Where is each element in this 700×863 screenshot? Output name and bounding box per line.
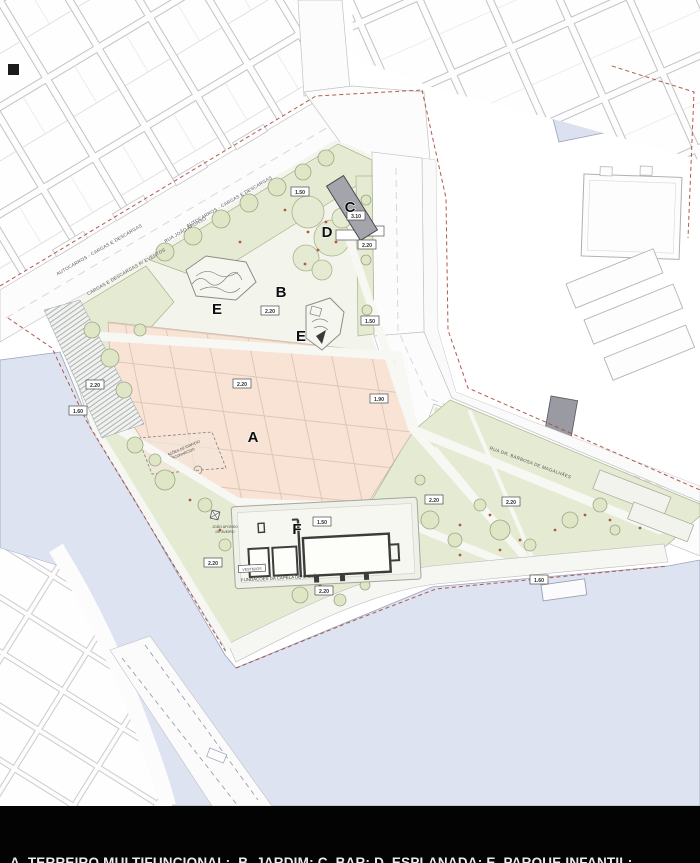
dimension-marker: 1.60 (530, 575, 548, 584)
svg-text:1.60: 1.60 (534, 578, 544, 584)
dimension-marker: 2.20 (204, 558, 222, 567)
svg-text:2.20: 2.20 (319, 589, 329, 595)
svg-text:2.20: 2.20 (265, 309, 275, 315)
zone-label-d: D (322, 224, 333, 241)
svg-text:2.20: 2.20 (208, 561, 218, 567)
dimension-marker: 1.90 (370, 394, 388, 403)
street-north (298, 0, 350, 96)
monument-label: JOÃO AFONSO (212, 524, 238, 529)
dimension-marker: 2.20 (261, 306, 279, 315)
dimension-marker: 2.20 (358, 240, 376, 249)
chapel-foundations: VESTÍGIOS FUNDAÇÕES DA CAPELA DE S. JOÃO (231, 497, 421, 589)
svg-text:1.50: 1.50 (295, 190, 305, 196)
dimension-marker: 2.20 (425, 495, 443, 504)
legend-line-1: A. TERREIRO MULTIFUNCIONAL; B. JARDIM; C… (10, 853, 700, 863)
dimension-marker: 2.20 (502, 497, 520, 506)
dimension-marker: 2.20 (86, 380, 104, 389)
svg-text:1.50: 1.50 (317, 520, 327, 526)
dimension-marker: 1.60 (69, 406, 87, 415)
zone-label-c: C (345, 199, 356, 216)
svg-text:2.20: 2.20 (90, 383, 100, 389)
zone-label-e-west: E (212, 301, 222, 318)
monument-label2: DE AVEIRO (215, 530, 234, 534)
dimension-marker: 1.50 (313, 517, 331, 526)
zone-label-a: A (248, 429, 259, 446)
svg-text:2.20: 2.20 (362, 243, 372, 249)
dimension-marker: 1.50 (291, 187, 309, 196)
svg-text:1.60: 1.60 (73, 409, 83, 415)
svg-text:2.20: 2.20 (237, 382, 247, 388)
dimension-marker: 1.50 (361, 316, 379, 325)
zone-label-e-east: E (296, 328, 306, 345)
site-plan-page: FUNDAÇÕES DE EDIFÍCIO DESCONHECIDO (0, 0, 700, 863)
svg-text:1.90: 1.90 (374, 397, 384, 403)
zone-label-f: F (292, 521, 301, 538)
dimension-marker: 2.20 (233, 379, 251, 388)
svg-text:1.50: 1.50 (365, 319, 375, 325)
legend-bar: A. TERREIRO MULTIFUNCIONAL; B. JARDIM; C… (0, 806, 700, 863)
svg-text:2.20: 2.20 (429, 498, 439, 504)
svg-text:2.20: 2.20 (506, 500, 516, 506)
site-plan-map: FUNDAÇÕES DE EDIFÍCIO DESCONHECIDO (0, 0, 700, 806)
zone-label-b: B (276, 284, 287, 301)
dimension-marker: 2.20 (315, 586, 333, 595)
building-solid-marker (8, 64, 19, 75)
